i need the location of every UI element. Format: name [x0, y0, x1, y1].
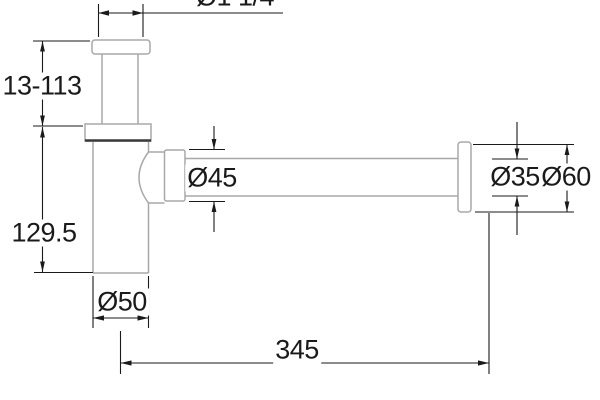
arrowhead [40, 262, 45, 273]
label-pipe-length: 345 [273, 337, 321, 364]
arrowhead [565, 145, 570, 156]
label-body-diameter: Ø50 [95, 289, 149, 316]
arrowhead [133, 10, 144, 15]
arrowhead [40, 127, 45, 138]
arrowhead [99, 10, 110, 15]
arrowhead [121, 360, 132, 365]
label-nut-diameter: Ø45 [185, 165, 239, 192]
technical-drawing-canvas: Ø1 1/4 13-113 129.5 Ø50 Ø45 Ø35 Ø60 345 [0, 0, 600, 400]
outlet-nut [165, 150, 186, 201]
arrowhead [515, 196, 520, 207]
label-body-height: 129.5 [9, 220, 78, 247]
label-flange-diameter: Ø60 [539, 164, 593, 191]
arrowhead [565, 202, 570, 213]
label-inlet-thread: Ø1 1/4 [194, 0, 276, 11]
dim-body-height [34, 127, 93, 273]
arrowhead [40, 116, 45, 127]
label-inlet-height: 13-113 [0, 73, 83, 100]
wall-flange [458, 142, 471, 212]
inlet-top-flange [92, 40, 150, 54]
part-geometry [85, 40, 471, 273]
outlet-intersection-arc [139, 152, 149, 203]
arrowhead [212, 139, 217, 150]
arrowhead [515, 149, 520, 160]
arrowhead [212, 202, 217, 213]
label-pipe-diameter: Ø35 [488, 164, 542, 191]
arrowhead [478, 360, 489, 365]
trap-collar [85, 124, 151, 141]
arrowhead [40, 41, 45, 52]
